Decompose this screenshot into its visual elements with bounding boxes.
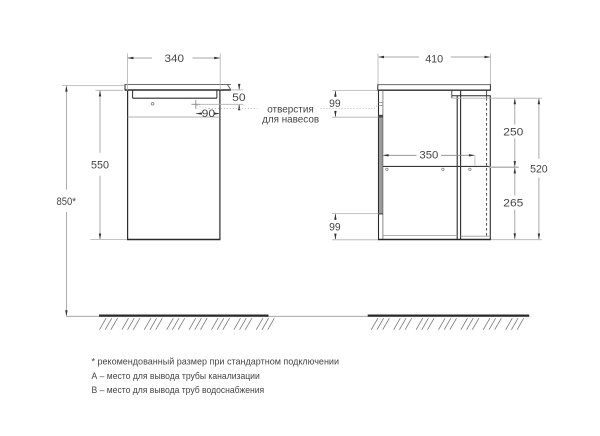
svg-text:850*: 850* (56, 196, 76, 208)
svg-text:340: 340 (165, 53, 185, 65)
svg-text:* рекомендованный размер при с: * рекомендованный размер при стандартном… (92, 356, 340, 367)
svg-text:265: 265 (503, 198, 523, 210)
svg-text:99: 99 (329, 98, 341, 110)
svg-text:250: 250 (503, 127, 523, 139)
svg-text:550: 550 (91, 160, 109, 172)
svg-text:350: 350 (419, 150, 438, 162)
svg-text:410: 410 (425, 53, 443, 65)
svg-text:В – место для вывода труб водо: В – место для вывода труб водоснабжения (92, 385, 265, 396)
svg-text:520: 520 (530, 164, 548, 176)
svg-text:99: 99 (329, 222, 341, 234)
svg-text:А – место для вывода трубы кан: А – место для вывода трубы канализации (92, 371, 260, 382)
svg-text:90: 90 (202, 108, 216, 120)
svg-text:50: 50 (232, 92, 246, 104)
svg-text:для навесов: для навесов (262, 115, 319, 126)
